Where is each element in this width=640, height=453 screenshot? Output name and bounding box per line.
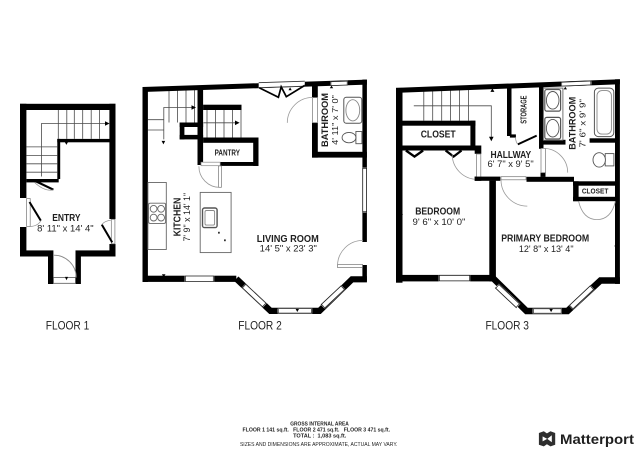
- svg-text:STORAGE: STORAGE: [520, 96, 529, 124]
- svg-text:7' 6" x 9' 9": 7' 6" x 9' 9": [577, 99, 587, 148]
- svg-text:FLOOR 3: FLOOR 3: [485, 319, 529, 333]
- svg-text:4' 11" x 7' 0": 4' 11" x 7' 0": [330, 95, 340, 145]
- svg-text:ENTRY: ENTRY: [52, 213, 81, 224]
- svg-text:9' 6" x 10' 0": 9' 6" x 10' 0": [413, 217, 466, 227]
- svg-text:TOTAL : 1,083 sq.ft.: TOTAL : 1,083 sq.ft.: [293, 434, 347, 440]
- svg-text:SIZES AND DIMENSIONS ARE APPRO: SIZES AND DIMENSIONS ARE APPROXIMATE, AC…: [240, 442, 398, 448]
- svg-text:7' 9" x 14' 1": 7' 9" x 14' 1": [182, 193, 192, 242]
- svg-text:CLOSET: CLOSET: [421, 129, 456, 140]
- svg-text:Matterport: Matterport: [560, 431, 634, 447]
- svg-text:PANTRY: PANTRY: [215, 147, 241, 157]
- svg-text:PRIMARY BEDROOM: PRIMARY BEDROOM: [501, 234, 589, 245]
- svg-text:FLOOR 2: FLOOR 2: [238, 319, 282, 333]
- svg-text:6' 7" x 9' 5": 6' 7" x 9' 5": [488, 159, 534, 169]
- svg-text:FLOOR 1: FLOOR 1: [46, 319, 90, 333]
- svg-text:14' 5" x 23' 3": 14' 5" x 23' 3": [260, 244, 317, 254]
- svg-text:CLOSET: CLOSET: [582, 186, 609, 195]
- svg-text:12' 8" x 13' 4": 12' 8" x 13' 4": [519, 244, 574, 254]
- svg-text:8' 11" x 14' 4": 8' 11" x 14' 4": [37, 224, 94, 234]
